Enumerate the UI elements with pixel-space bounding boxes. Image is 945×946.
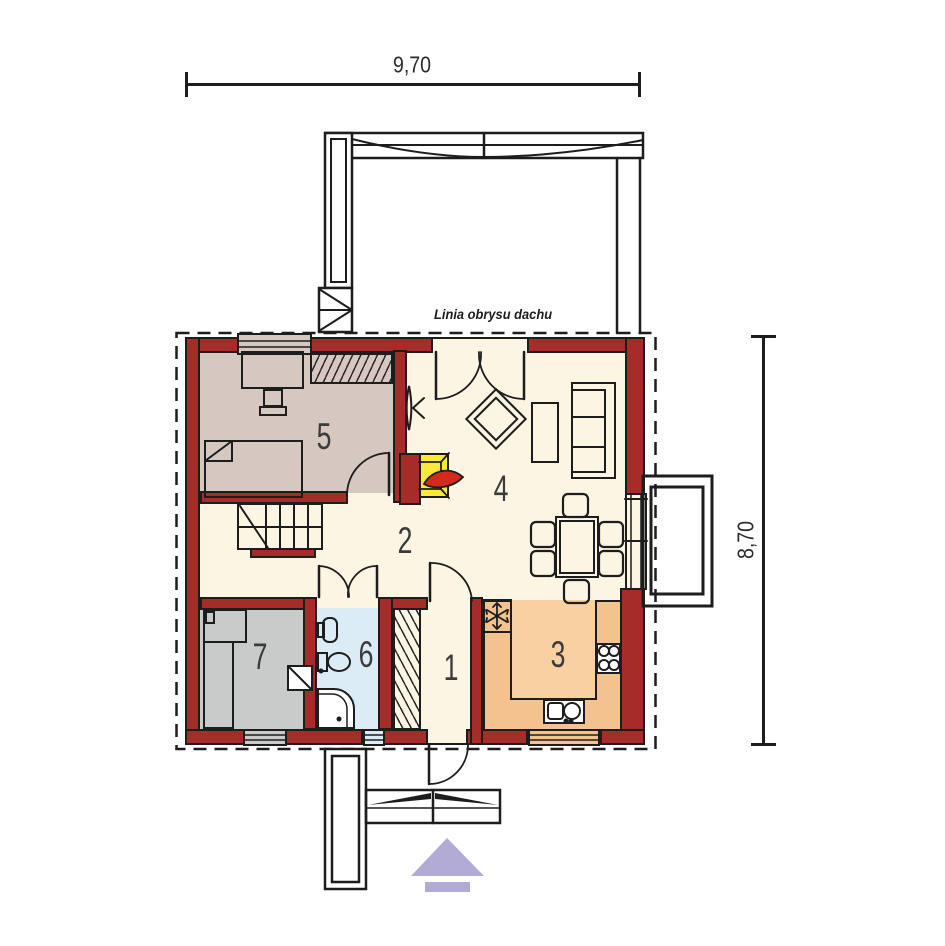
shower <box>318 689 354 728</box>
dimension-top-tick-right <box>638 72 641 97</box>
door-room7 <box>319 566 349 597</box>
staircase <box>238 504 322 549</box>
room-number-4: 4 <box>494 468 509 510</box>
dimension-right-label: 8,70 <box>733 521 760 559</box>
toilet <box>318 653 350 673</box>
hob-burner-rings-icon <box>597 644 620 673</box>
washbasin <box>318 618 337 642</box>
roof-outline-note: Linia obrysu dachu <box>434 306 552 322</box>
dimension-top-line <box>185 83 640 86</box>
terrace-structure <box>319 133 643 333</box>
chimney-stack <box>325 133 352 288</box>
fireplace-detail <box>419 453 463 498</box>
snowflake-icon <box>486 603 508 629</box>
room-number-3: 3 <box>551 634 566 676</box>
room5-bed <box>205 441 302 497</box>
entrance-door <box>429 745 468 784</box>
tv-icon <box>407 386 424 430</box>
sofa <box>572 383 615 478</box>
flame-icon <box>424 471 463 488</box>
door-room1 <box>430 563 472 601</box>
room-number-2: 2 <box>398 520 413 562</box>
dining-table <box>556 517 598 577</box>
door-room6 <box>348 566 377 597</box>
dimension-top-tick-left <box>185 72 188 97</box>
dimension-right-tick-top <box>751 335 776 338</box>
plan-linework <box>0 0 945 946</box>
room-number-5: 5 <box>317 416 332 458</box>
dimension-top-label: 9,70 <box>393 52 431 79</box>
fridge <box>483 600 511 632</box>
room-number-1: 1 <box>444 647 459 689</box>
floor-plan-canvas: 1 2 3 4 5 6 7 Linia obrysu dachu 9,70 8,… <box>0 0 945 946</box>
dimension-right-tick-bottom <box>751 743 776 746</box>
room5-chair <box>260 390 286 415</box>
french-door-terrace <box>436 352 524 399</box>
room-number-6: 6 <box>359 634 374 676</box>
room-number-7: 7 <box>253 636 268 678</box>
dining-chairs <box>531 494 623 603</box>
kitchen-sink <box>544 700 584 723</box>
entrance-up-arrow-icon <box>411 838 484 892</box>
dimension-right-line <box>762 336 765 745</box>
side-terrace <box>643 476 712 606</box>
door-room5 <box>347 453 389 495</box>
coffee-table <box>532 403 558 462</box>
room5-desk <box>242 352 303 388</box>
